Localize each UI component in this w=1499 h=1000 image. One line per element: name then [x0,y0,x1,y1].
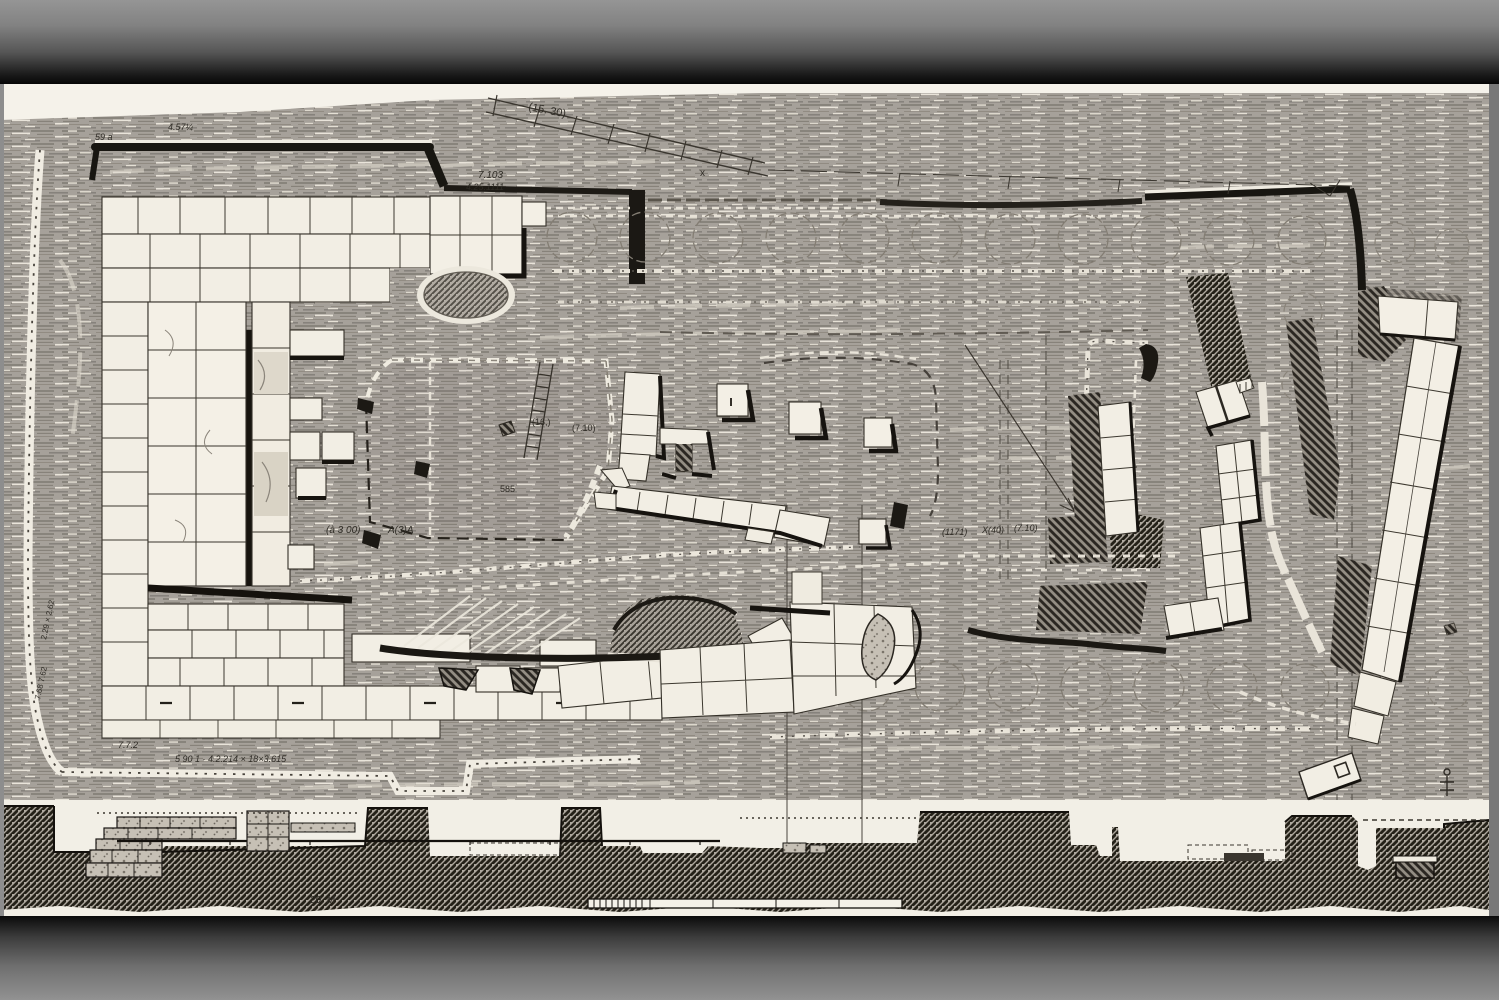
svg-text:(16,): (16,) [532,417,551,427]
svg-text:A(3)A: A(3)A [387,525,414,536]
svg-text:(7.10): (7.10) [572,423,596,433]
svg-text:4.25.1111: 4.25.1111 [466,182,504,192]
svg-text:x: x [700,168,705,179]
svg-text:(à 3 00): (à 3 00) [326,525,360,536]
svg-text:X(40): X(40) [981,525,1004,535]
svg-text:585: 585 [500,484,515,494]
svg-text:(7.10): (7.10) [1014,523,1038,533]
svg-text:4.57¼: 4.57¼ [168,122,194,132]
svg-text:(1171): (1171) [942,527,967,537]
svg-text:20. M: 20. M [309,895,336,906]
svg-text:7.7.2: 7.7.2 [118,740,138,750]
svg-text:59 a: 59 a [95,132,113,142]
svg-text:5 90 1 · 4.2.214 × 18×3.615: 5 90 1 · 4.2.214 × 18×3.615 [175,754,287,764]
svg-text:7.103: 7.103 [478,170,503,181]
